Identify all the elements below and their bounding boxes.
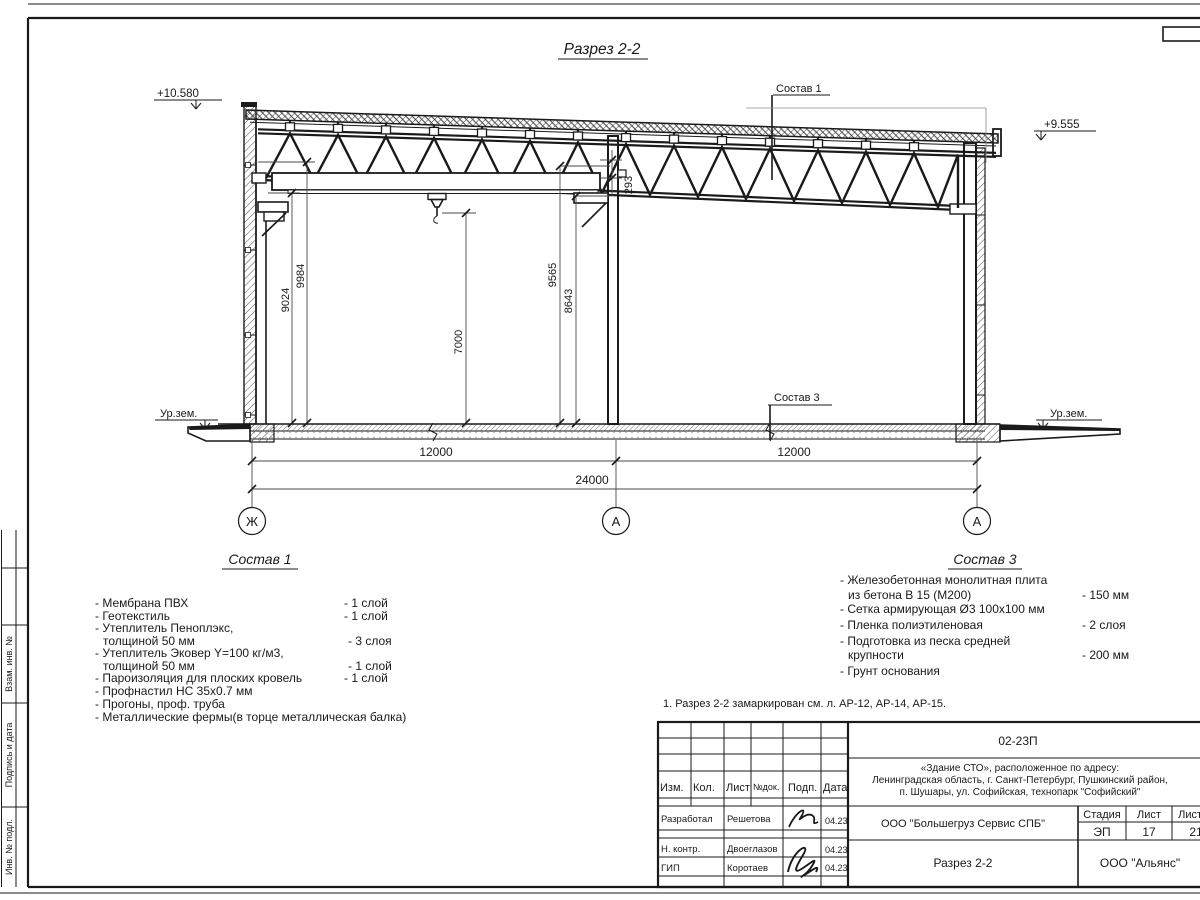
tb-col-data: Дата xyxy=(823,782,848,794)
panel-joint-plate xyxy=(246,163,251,168)
sostav3-item: - Грунт основания xyxy=(840,664,940,678)
side-stamp-label-vzam: Взам. инв. № xyxy=(4,636,14,692)
tb-sheet-title: Разрез 2-2 xyxy=(934,856,993,870)
axis-a2: А xyxy=(973,514,982,529)
sostav1-block: Состав 1 - Мембрана ПВХ - 1 слой - Геоте… xyxy=(95,551,406,724)
tb-contractor: ООО "Большегруз Сервис СПБ" xyxy=(881,818,1045,830)
sostav1-value: - 1 слой xyxy=(344,671,388,685)
sostav1-item: - Пароизоляция для плоских кровель xyxy=(95,671,302,685)
tb-org: ООО "Альянс" xyxy=(1100,856,1180,870)
dim-total: 24000 xyxy=(575,473,609,487)
sheet-frame xyxy=(0,4,1200,893)
dim-9984: 9984 xyxy=(295,264,307,288)
sostav1-value: - 1 слой xyxy=(344,596,388,610)
tb-row1-name: Решетова xyxy=(727,814,771,825)
tb-row2-role: Н. контр. xyxy=(661,844,700,855)
sostav1-item: - Прогоны, проф. труба xyxy=(95,697,225,711)
tb-stage-value: ЭП xyxy=(1093,825,1110,839)
sostav1-heading: Состав 1 xyxy=(228,551,291,567)
view-title-text: Разрез 2-2 xyxy=(564,41,641,58)
side-stamp-label-inv: Инв. № подл. xyxy=(4,819,14,875)
purlin xyxy=(814,140,823,148)
purlin xyxy=(286,123,295,131)
section-view: 9024 9984 7000 9565 8643 293 xyxy=(154,83,1120,535)
signature-2 xyxy=(788,848,817,877)
tb-row2-name: Двоеглазов xyxy=(727,844,778,855)
tb-row2-date: 04.23 xyxy=(825,845,848,855)
tb-project-line1: «Здание СТО», расположенное по адресу: xyxy=(921,763,1119,774)
sostav3-item: крупности xyxy=(848,648,904,662)
sostav3-value: - 2 слоя xyxy=(1082,618,1126,632)
hoist xyxy=(428,194,446,224)
axis-a1: А xyxy=(612,514,621,529)
floor-slab xyxy=(188,423,1120,442)
tb-doc-number: 02-23П xyxy=(998,734,1037,748)
sostav3-item: - Подготовка из песка средней xyxy=(840,634,1010,648)
level-right: +9.555 xyxy=(1044,119,1080,131)
sostav1-item: - Профнастил НС 35х0.7 мм xyxy=(95,684,253,698)
sostav3-item: из бетона В 15 (М200) xyxy=(848,588,971,602)
sostav3-value: - 150 мм xyxy=(1082,588,1129,602)
tb-project-line3: п. Шушары, ул. Софийская, технопарк "Соф… xyxy=(900,786,1141,798)
dim-7000: 7000 xyxy=(453,330,465,354)
sostav1-item: - Металлические фермы(в торце металличес… xyxy=(95,710,406,724)
tb-col-list: Лист xyxy=(726,782,750,794)
level-left: +10.580 xyxy=(157,88,199,100)
tb-row3-role: ГИП xyxy=(661,863,680,874)
tb-row3-name: Коротаев xyxy=(727,863,768,874)
tb-col-izm: Изм. xyxy=(660,782,684,794)
sostav1-item: - Утеплитель Пеноплэкс, xyxy=(95,621,233,635)
sostav3-value: - 200 мм xyxy=(1082,648,1129,662)
format-corner-box xyxy=(1163,27,1200,41)
callout-sostav3: Состав 3 xyxy=(774,392,820,404)
signature-1 xyxy=(789,810,818,827)
sostav3-item: - Железобетонная монолитная плита xyxy=(840,573,1048,587)
callout-sostav1: Состав 1 xyxy=(776,83,822,95)
purlin xyxy=(718,137,727,145)
ground-left: Ур.зем. xyxy=(160,408,197,420)
axis-zh: Ж xyxy=(246,514,258,529)
side-stamp: Взам. инв. № Подпись и дата Инв. № подл. xyxy=(2,530,29,887)
dim-9024: 9024 xyxy=(280,288,292,312)
tb-sheets-value: 21 xyxy=(1189,825,1200,839)
dim-9565: 9565 xyxy=(547,263,559,287)
tb-col-kol: Кол. xyxy=(693,782,715,794)
sostav1-value: - 3 слоя xyxy=(348,634,392,648)
purlin xyxy=(478,129,487,137)
purlin xyxy=(334,124,343,132)
dim-span-left: 12000 xyxy=(419,445,453,459)
note-text: 1. Разрез 2-2 замаркирован см. л. АР-12,… xyxy=(663,698,946,710)
panel-joint-plate xyxy=(246,248,251,253)
sostav3-item: - Сетка армирующая Ø3 100х100 мм xyxy=(840,602,1045,616)
sostav3-heading: Состав 3 xyxy=(953,551,1016,567)
sostav1-item: - Утеплитель Эковер Y=100 кг/м3, xyxy=(95,646,284,660)
dim-293: 293 xyxy=(623,176,635,194)
panel-joint-plate xyxy=(246,333,251,338)
tb-sheet-value: 17 xyxy=(1142,825,1156,839)
tb-project-line2: Ленинградская область, г. Санкт-Петербур… xyxy=(872,774,1168,786)
view-title: Разрез 2-2 xyxy=(558,41,648,59)
dim-8643: 8643 xyxy=(563,289,575,313)
tb-row3-date: 04.23 xyxy=(825,863,848,873)
tb-sheet-label: Лист xyxy=(1137,809,1161,821)
roof xyxy=(246,110,998,214)
title-block: Изм. Кол. Лист №док. Подп. Дата Разработ… xyxy=(658,722,1200,887)
panel-joint-plate xyxy=(246,413,251,418)
tb-sheets-label: Листов xyxy=(1178,809,1200,821)
sostav3-item: - Пленка полиэтиленовая xyxy=(840,618,983,632)
axis-bubbles: Ж А А xyxy=(239,508,991,535)
purlin xyxy=(382,126,391,134)
crane-runway xyxy=(258,170,626,236)
drawing-sheet: Взам. инв. № Подпись и дата Инв. № подл.… xyxy=(0,0,1200,900)
purlin xyxy=(526,131,535,139)
purlin xyxy=(862,141,871,149)
purlin xyxy=(430,127,439,135)
purlin xyxy=(910,143,919,151)
purlin xyxy=(670,135,679,143)
sostav1-value: - 1 слой xyxy=(344,609,388,623)
purlin xyxy=(574,132,583,140)
tb-stage-label: Стадия xyxy=(1083,809,1121,821)
tb-row1-role: Разработал xyxy=(661,814,713,825)
tb-row1-date: 04.23 xyxy=(825,816,848,826)
ground-right: Ур.зем. xyxy=(1050,408,1087,420)
side-stamp-label-podp: Подпись и дата xyxy=(4,723,14,788)
dim-span-right: 12000 xyxy=(777,445,811,459)
sostav1-item: - Мембрана ПВХ xyxy=(95,596,188,610)
purlin xyxy=(766,138,775,146)
sostav3-block: Состав 3 - Железобетонная монолитная пли… xyxy=(840,551,1129,678)
horizontal-dimensions: 12000 12000 24000 xyxy=(248,440,981,507)
tb-col-podp: Подп. xyxy=(788,782,817,794)
tb-col-ndok: №док. xyxy=(753,782,779,792)
purlin xyxy=(622,134,631,142)
